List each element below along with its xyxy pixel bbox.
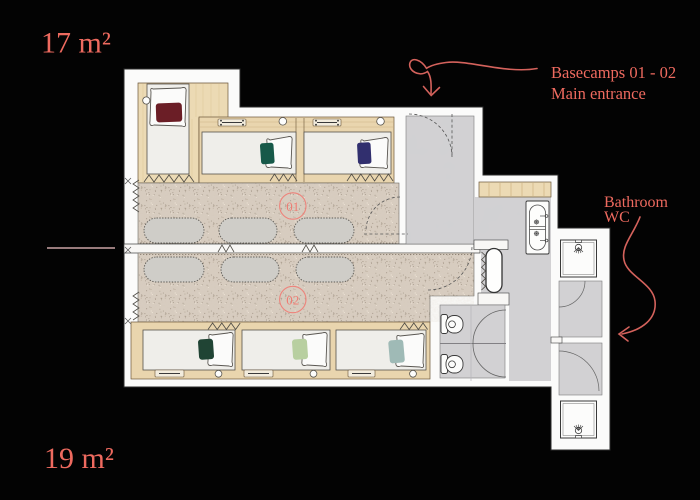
svg-text:01: 01 [286, 199, 299, 214]
svg-text:WC: WC [604, 209, 630, 226]
svg-text:Main entrance: Main entrance [551, 84, 646, 103]
svg-text:Basecamps 01 - 02: Basecamps 01 - 02 [551, 63, 676, 82]
svg-text:02: 02 [286, 293, 299, 308]
svg-text:17 m²: 17 m² [41, 27, 111, 60]
svg-text:19 m²: 19 m² [44, 442, 114, 475]
